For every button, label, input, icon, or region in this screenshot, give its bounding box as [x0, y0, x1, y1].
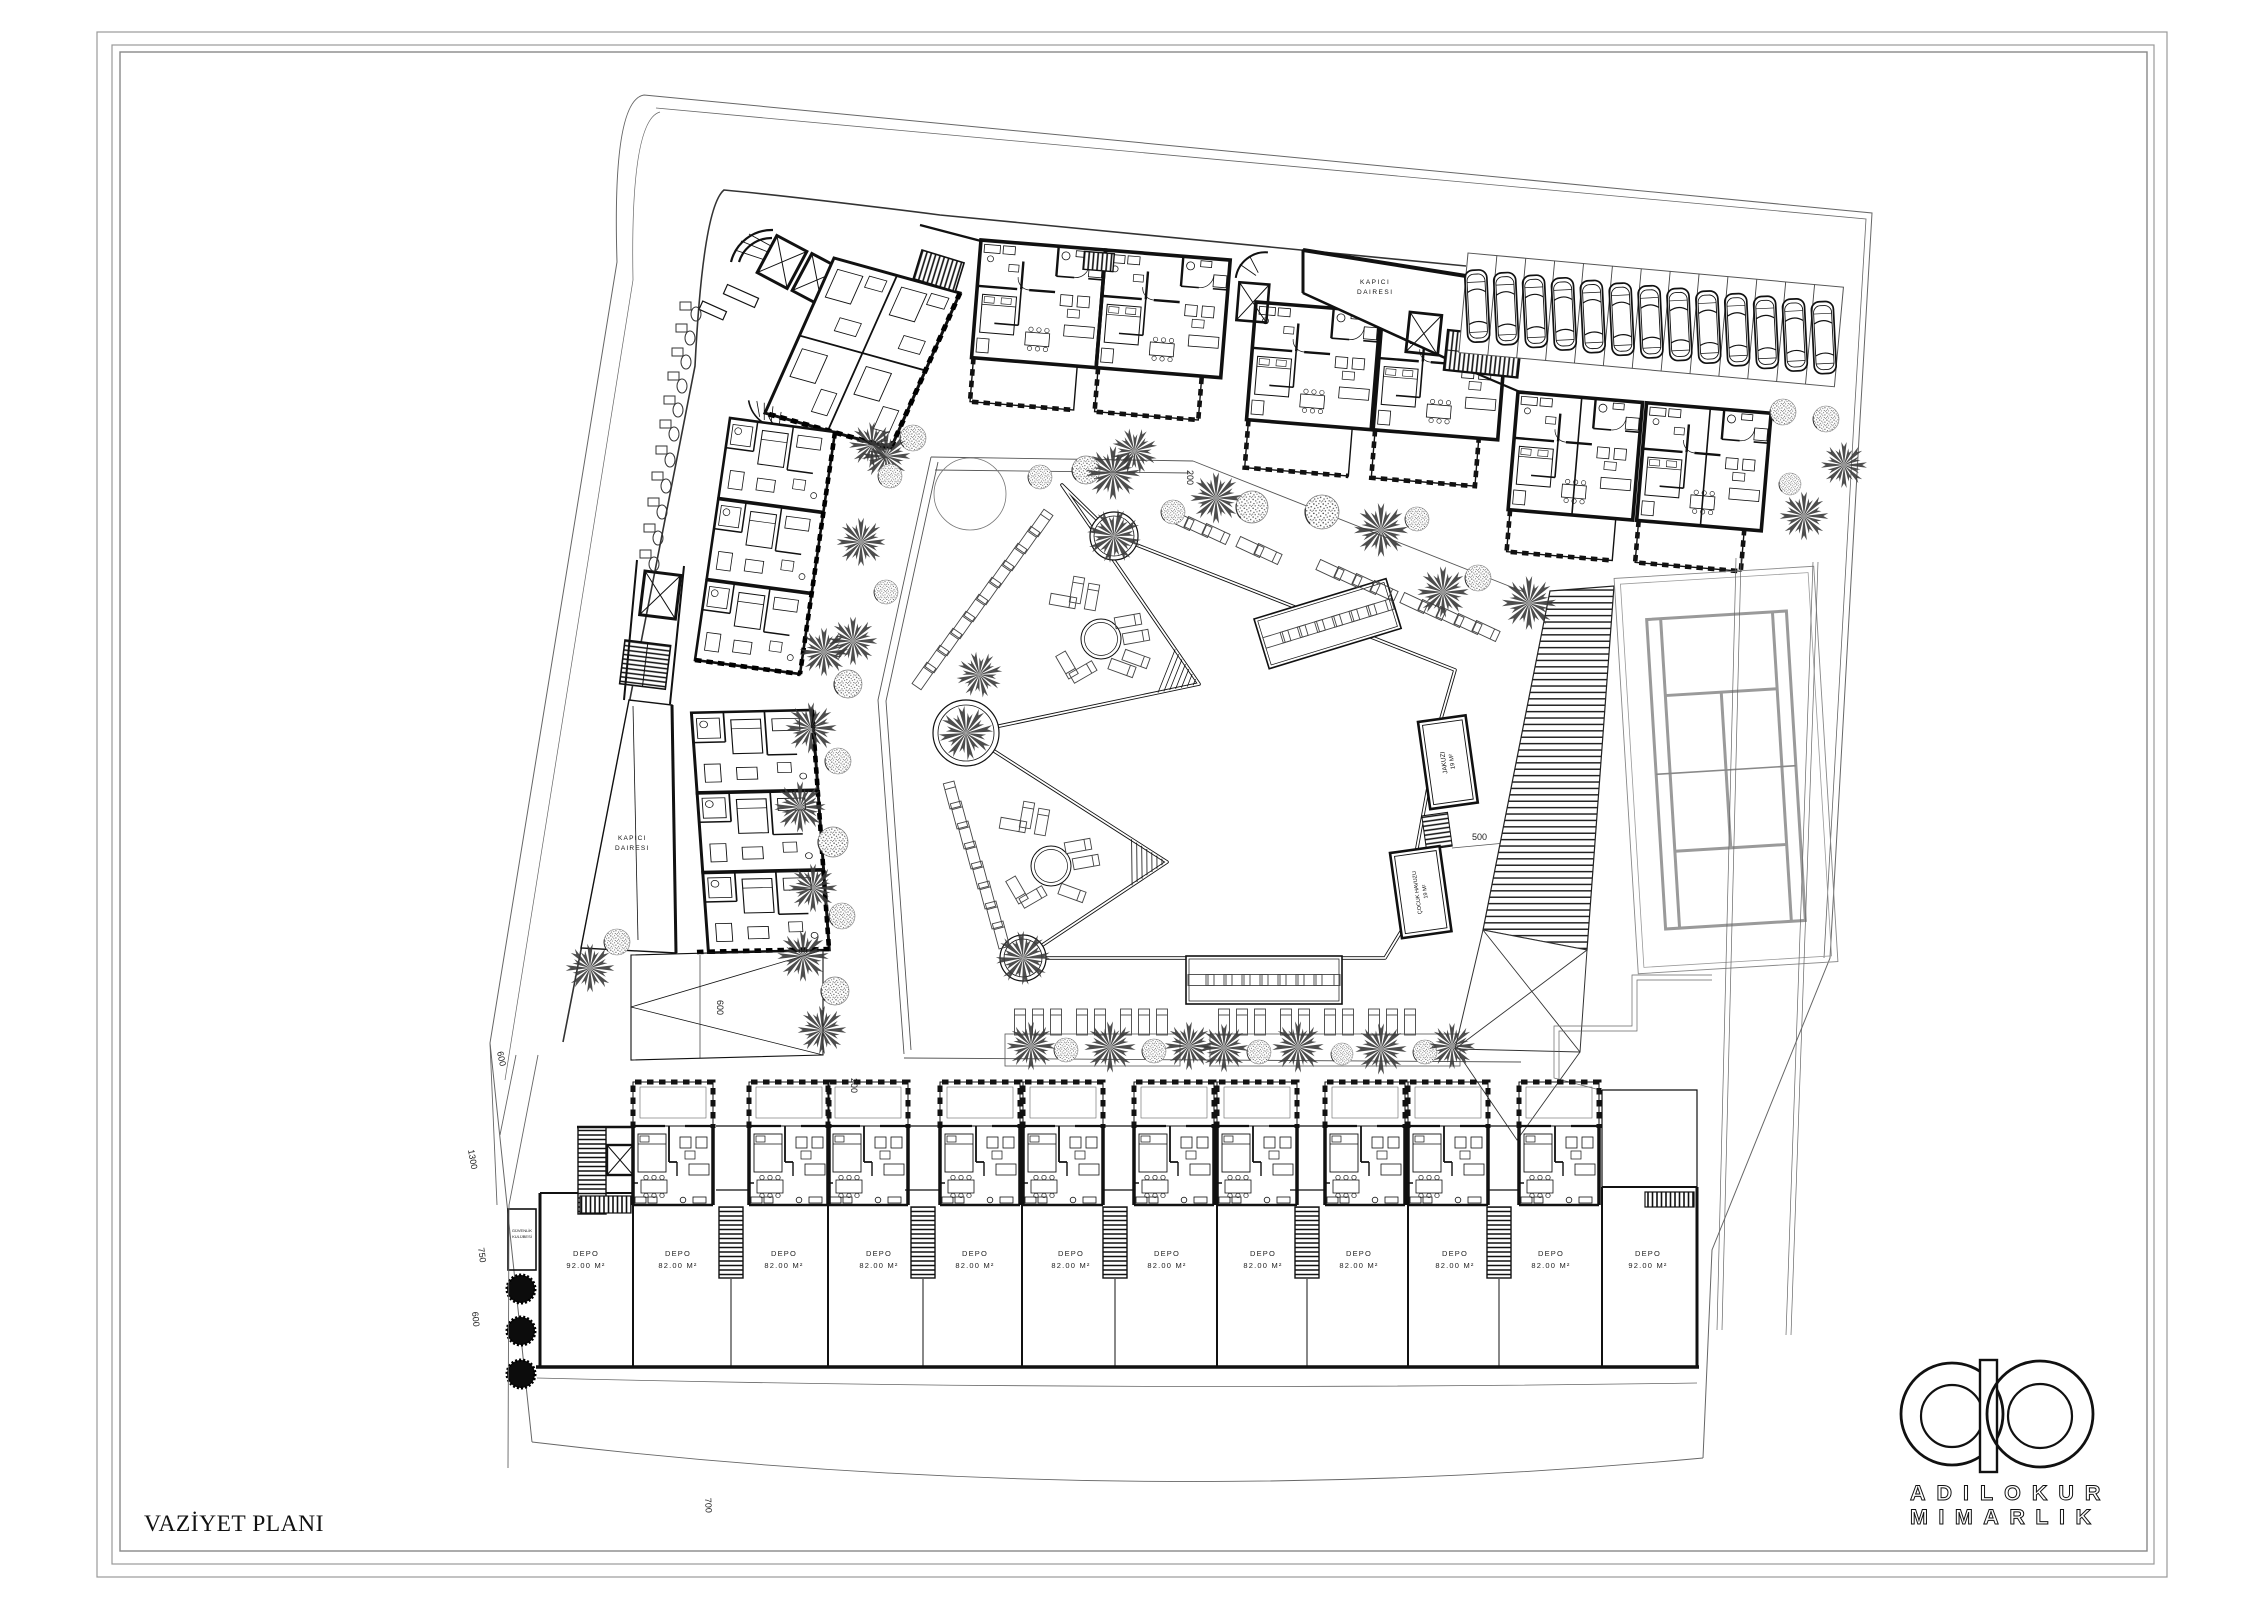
- svg-text:82.00 M²: 82.00 M²: [658, 1261, 697, 1270]
- svg-text:82.00 M²: 82.00 M²: [1051, 1261, 1090, 1270]
- svg-text:DEPO: DEPO: [1154, 1249, 1180, 1258]
- svg-text:KAPICI: KAPICI: [1360, 279, 1390, 286]
- svg-text:92.00 M²: 92.00 M²: [566, 1261, 605, 1270]
- svg-text:750: 750: [476, 1247, 488, 1263]
- svg-text:82.00 M²: 82.00 M²: [1435, 1261, 1474, 1270]
- svg-text:DEPO: DEPO: [665, 1249, 691, 1258]
- svg-text:82.00 M²: 82.00 M²: [1147, 1261, 1186, 1270]
- svg-text:ADILOKUR: ADILOKUR: [1910, 1481, 2111, 1505]
- svg-text:DEPO: DEPO: [573, 1249, 599, 1258]
- svg-text:82.00 M²: 82.00 M²: [764, 1261, 803, 1270]
- svg-text:DEPO: DEPO: [962, 1249, 988, 1258]
- svg-text:600: 600: [470, 1311, 482, 1327]
- svg-text:82.00 M²: 82.00 M²: [859, 1261, 898, 1270]
- svg-text:KULÜBESİ: KULÜBESİ: [512, 1234, 532, 1239]
- svg-text:600: 600: [715, 1000, 725, 1015]
- svg-text:200: 200: [849, 1078, 859, 1093]
- svg-text:DEPO: DEPO: [1346, 1249, 1372, 1258]
- svg-text:MIMARLIK: MIMARLIK: [1910, 1505, 2101, 1529]
- svg-text:200: 200: [1185, 470, 1195, 485]
- svg-text:DEPO: DEPO: [1250, 1249, 1276, 1258]
- svg-text:DAIRESI: DAIRESI: [1357, 289, 1394, 296]
- svg-text:82.00 M²: 82.00 M²: [955, 1261, 994, 1270]
- svg-text:82.00 M²: 82.00 M²: [1531, 1261, 1570, 1270]
- svg-text:DEPO: DEPO: [866, 1249, 892, 1258]
- svg-text:DEPO: DEPO: [1635, 1249, 1661, 1258]
- svg-text:DEPO: DEPO: [1538, 1249, 1564, 1258]
- svg-text:82.00 M²: 82.00 M²: [1339, 1261, 1378, 1270]
- svg-text:DEPO: DEPO: [1442, 1249, 1468, 1258]
- svg-text:KAPICI: KAPICI: [618, 835, 647, 842]
- svg-text:VAZİYET PLANI: VAZİYET PLANI: [144, 1511, 324, 1537]
- svg-text:GÜVENLİK: GÜVENLİK: [512, 1228, 533, 1233]
- svg-text:82.00 M²: 82.00 M²: [1243, 1261, 1282, 1270]
- svg-text:92.00 M²: 92.00 M²: [1628, 1261, 1667, 1270]
- svg-text:DAIRESI: DAIRESI: [615, 845, 649, 852]
- svg-text:DEPO: DEPO: [1058, 1249, 1084, 1258]
- svg-text:500: 500: [1472, 832, 1487, 842]
- svg-text:700: 700: [703, 1498, 714, 1514]
- svg-text:DEPO: DEPO: [771, 1249, 797, 1258]
